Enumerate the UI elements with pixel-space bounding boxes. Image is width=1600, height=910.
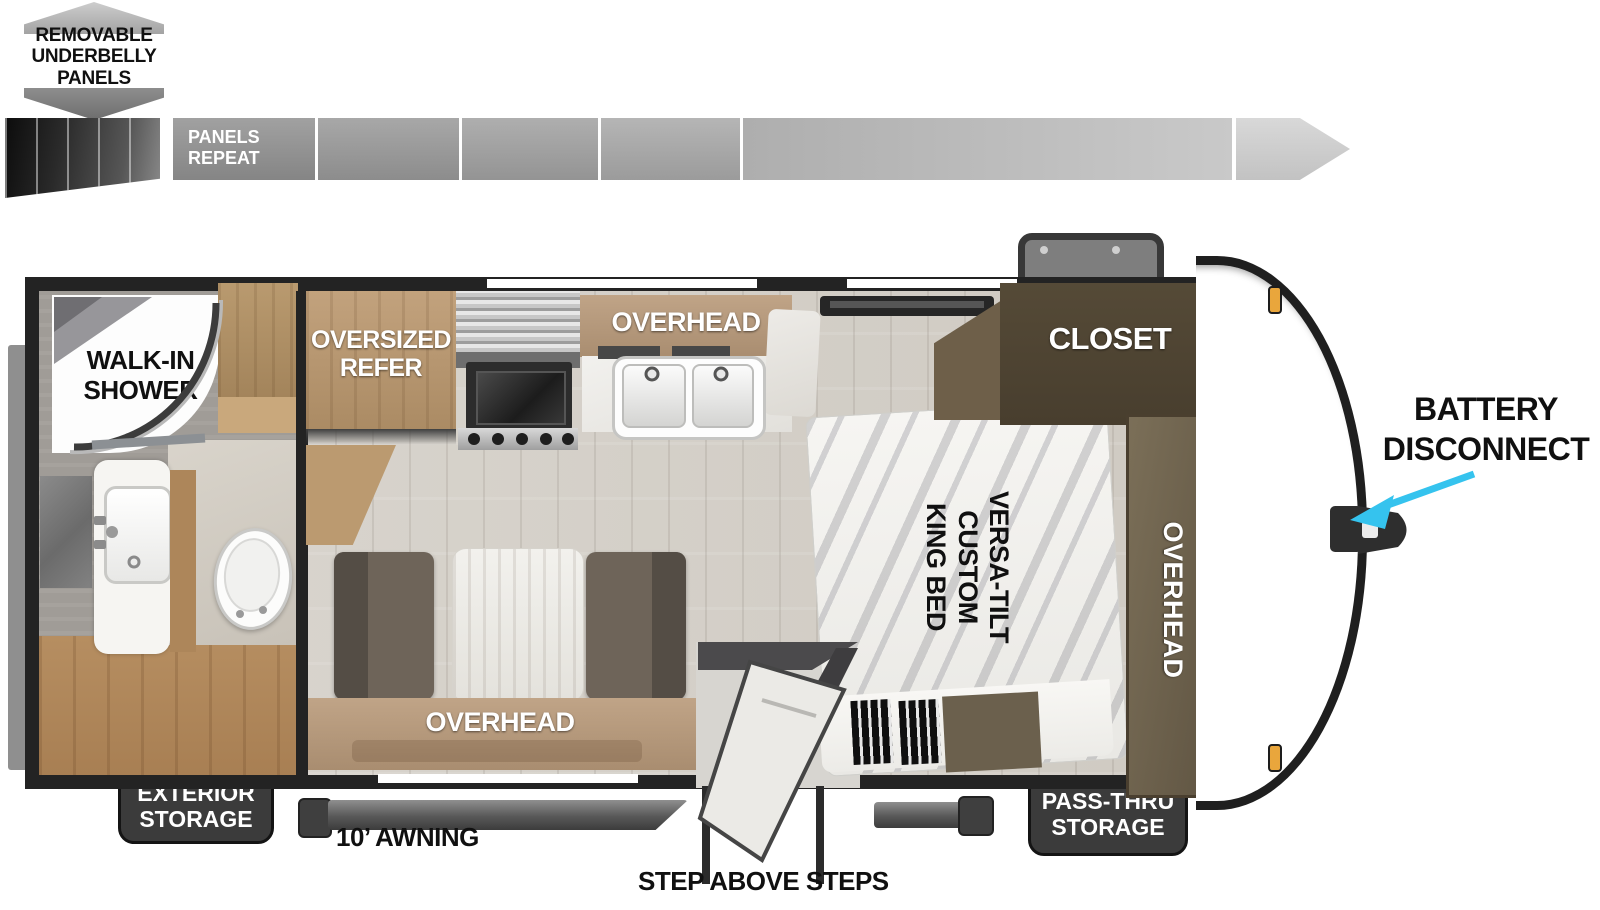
panel-segment: [318, 118, 459, 180]
panel-segment-dark: [5, 118, 160, 198]
closet-label: CLOSET: [1010, 318, 1210, 360]
awning-label: 10’ AWNING: [336, 822, 479, 853]
dinette-bench-backrest: [652, 552, 686, 700]
floorplan-canvas: REMOVABLE UNDERBELLY PANELS PANELS REPEA…: [0, 0, 1600, 910]
oven-window: [476, 371, 566, 425]
dinette-overhead-label: OVERHEAD: [380, 702, 620, 742]
dinette-table: [452, 548, 584, 702]
bath-cabinet-shelf: [218, 397, 296, 433]
window: [378, 774, 638, 783]
dinette-overhead-inset: [352, 740, 642, 762]
refrigerator-label: OVERSIZED REFER: [306, 322, 456, 386]
marker-light: [1268, 286, 1282, 314]
panels-repeat-label: PANELS REPEAT: [188, 127, 260, 169]
roof-vent-inner: [830, 301, 984, 308]
dinette-bench-backrest: [334, 552, 368, 700]
bathroom-mirror: [40, 476, 92, 588]
awning-roller: [874, 802, 966, 828]
king-bed-label: VERSA-TILT CUSTOM KING BED: [872, 472, 1062, 662]
window: [847, 279, 1017, 288]
step-above-steps-label: STEP ABOVE STEPS: [638, 866, 889, 897]
walk-in-shower-label: WALK-IN SHOWER: [58, 336, 223, 416]
underbelly-down-arrow-icon: [24, 88, 164, 120]
panel-segment: [462, 118, 598, 180]
tongue-box-screw: [1040, 246, 1048, 254]
kitchen-overhead-label: OVERHEAD: [580, 300, 792, 344]
marker-light: [1268, 744, 1282, 772]
panel-arrow-tip-icon: [1236, 118, 1350, 180]
range-knob-row: [458, 428, 578, 450]
sink-bowl: [692, 364, 754, 428]
underbelly-note: REMOVABLE UNDERBELLY PANELS: [6, 24, 182, 90]
range-counter: [456, 291, 580, 359]
battery-disconnect-label: BATTERY DISCONNECT: [1372, 386, 1600, 472]
vanity-side-panel: [170, 470, 196, 652]
bed-base-cabinet: [942, 692, 1042, 773]
awning-end-cap: [298, 798, 332, 838]
refrigerator-shadow: [306, 429, 456, 445]
window: [487, 279, 757, 288]
vanity-sink: [104, 486, 172, 584]
bed-step: [850, 699, 893, 765]
front-cap: [1196, 256, 1367, 810]
tongue-box-screw: [1112, 246, 1120, 254]
battery-arrow-line: [1388, 474, 1474, 505]
panel-segment-long: [743, 118, 1232, 180]
panel-segment: [601, 118, 740, 180]
sink-bowl: [622, 364, 686, 428]
bath-cabinet: [218, 283, 298, 397]
counter-extension: [763, 309, 820, 418]
bathroom-wood-floor: [39, 636, 301, 775]
awning-end-cap: [958, 796, 994, 836]
bed-step: [898, 699, 941, 765]
